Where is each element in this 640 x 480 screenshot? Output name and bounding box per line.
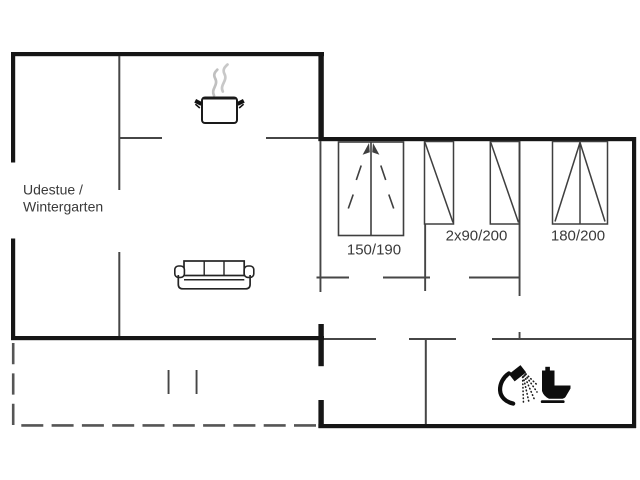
svg-text:180/200: 180/200 <box>551 228 605 245</box>
svg-text:2x90/200: 2x90/200 <box>446 228 508 245</box>
svg-text:Udestue /: Udestue / <box>23 182 83 198</box>
svg-text:Wintergarten: Wintergarten <box>23 199 103 215</box>
svg-text:150/190: 150/190 <box>347 242 401 259</box>
